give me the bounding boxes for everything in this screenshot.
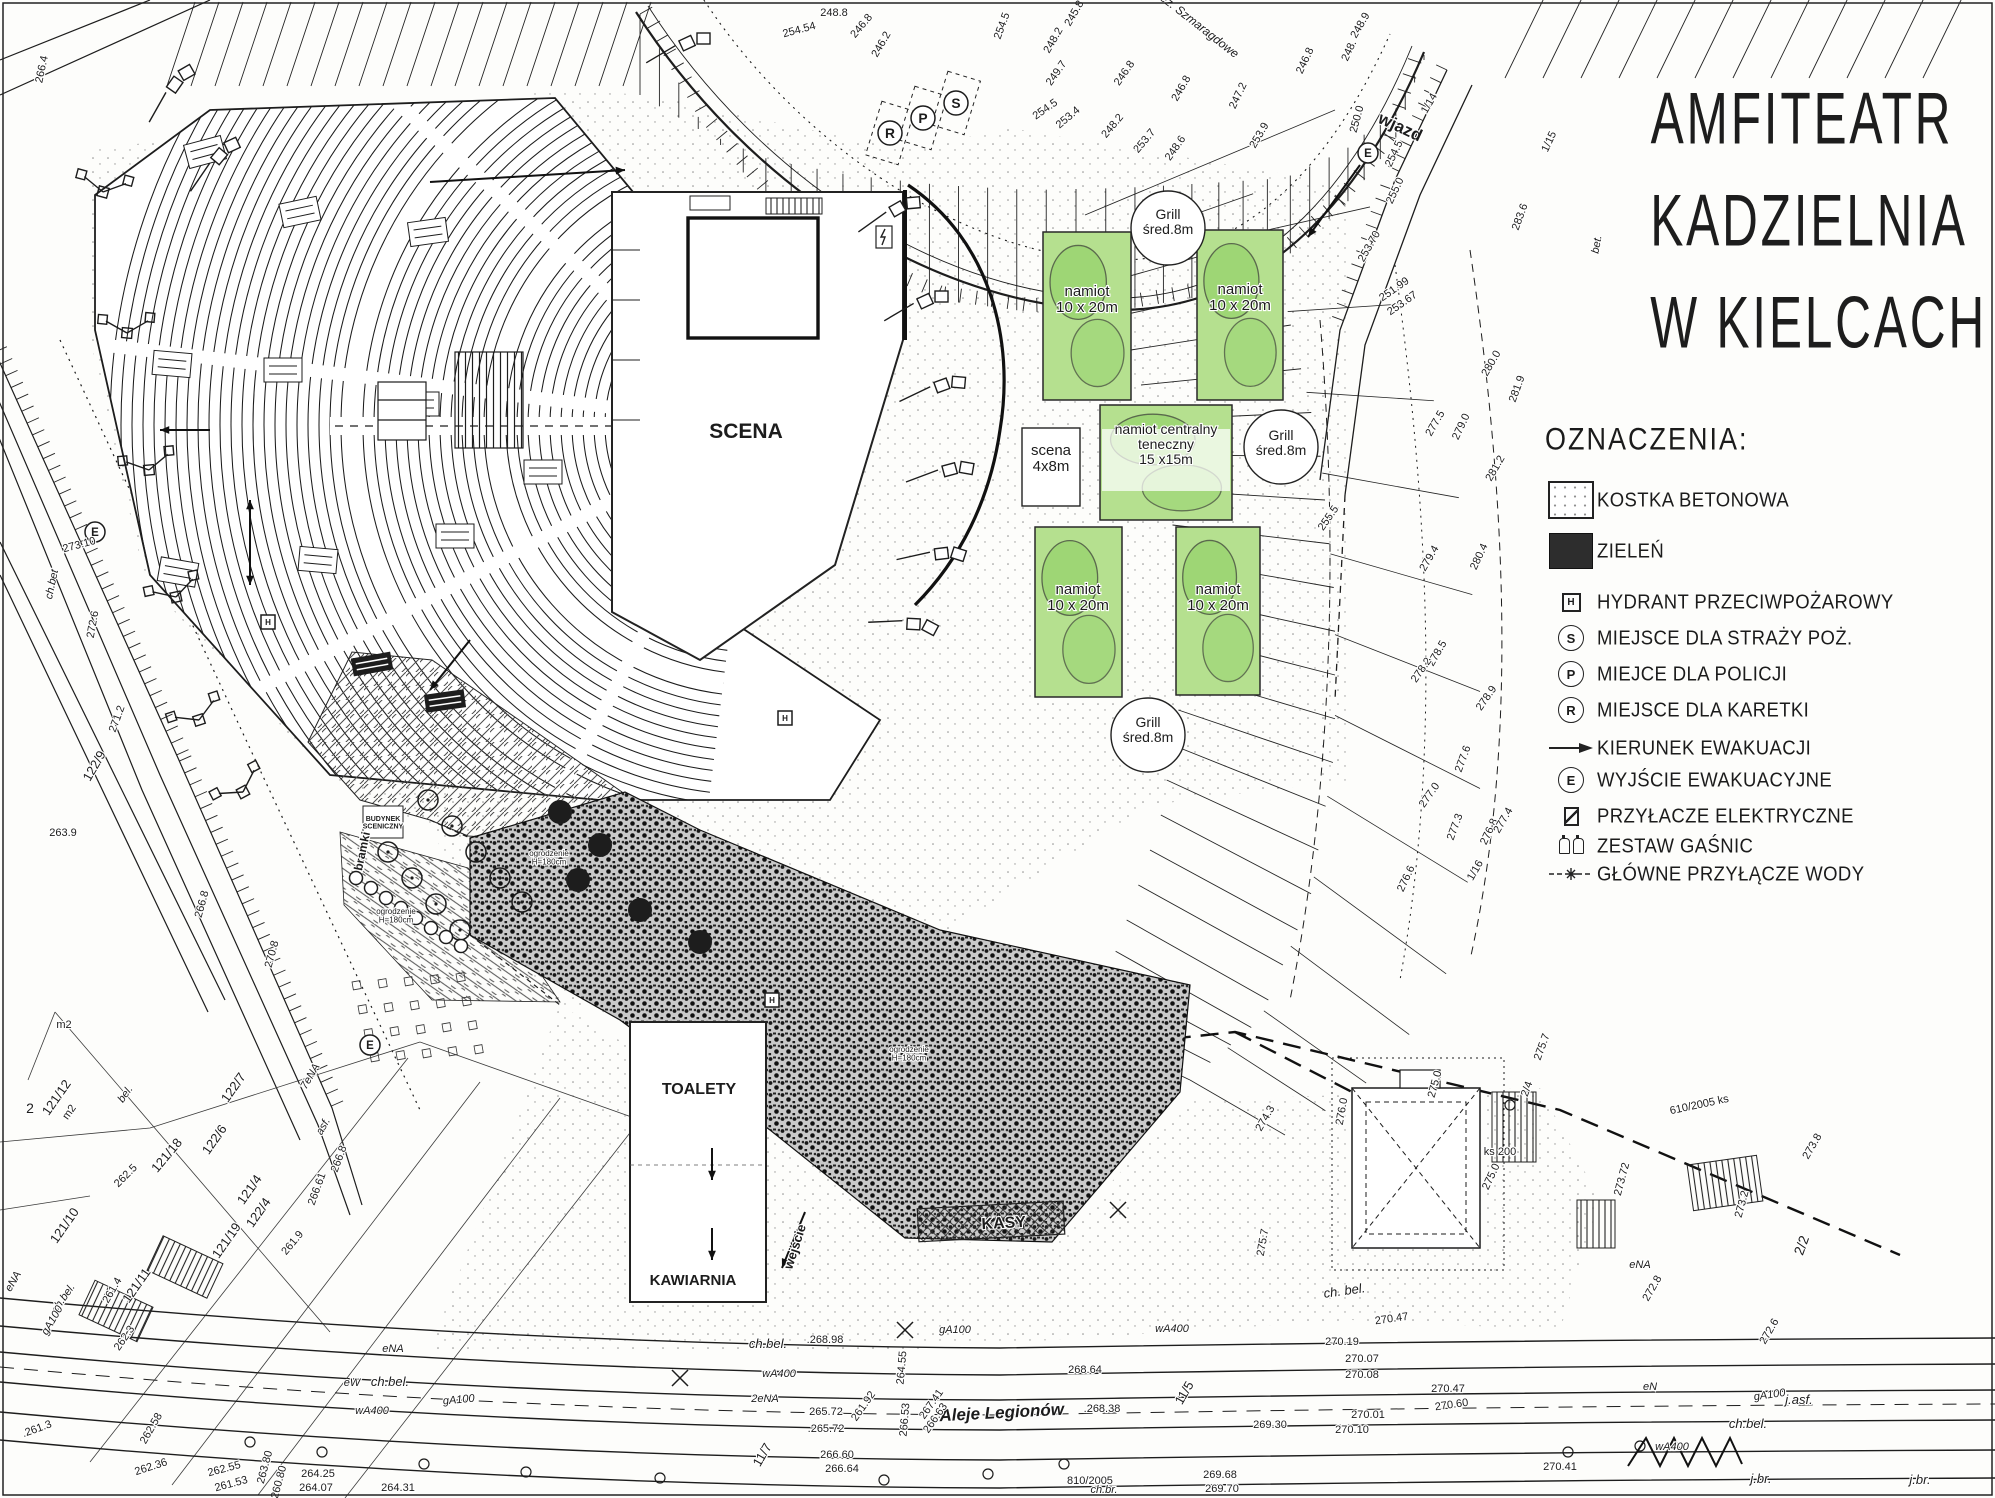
map-label: wA400 — [355, 1405, 390, 1417]
map-label: 264.31 — [381, 1482, 415, 1494]
map-label: j.br. — [1748, 1471, 1771, 1486]
map-label: 248.9 — [1348, 11, 1372, 41]
map-label: 271.2 — [107, 704, 128, 734]
map-label: 122/9 — [79, 748, 108, 784]
legend-label: WYJŚCIE EWAKUACYJNE — [1597, 768, 1832, 793]
map-label: eNA — [1629, 1259, 1650, 1271]
map-label: namiot10 x 20m — [1056, 283, 1118, 316]
map-label: 266.53 — [898, 1402, 913, 1437]
map-label: 262.58 — [138, 1411, 165, 1446]
legend-label: GŁÓWNE PRZYŁĄCZE WODY — [1597, 862, 1864, 887]
marker-P: P — [911, 106, 935, 130]
map-label: ogrodzenieH=180cm — [529, 849, 569, 867]
legend-item-gasnice: ZESTAW GAŚNIC — [1545, 835, 1990, 857]
map-label: .268.38 — [1084, 1403, 1121, 1415]
legend-label: KOSTKA BETONOWA — [1597, 488, 1789, 513]
map-label: 272.8 — [1640, 1274, 1664, 1304]
map-label: namiot10 x 20m — [1209, 281, 1271, 314]
map-label: 253.9 — [1247, 121, 1271, 151]
marker-E: E — [360, 1035, 380, 1055]
fire-brigade-icon: S — [1558, 625, 1584, 651]
map-label: namiot10 x 20m — [1187, 581, 1249, 614]
map-label: 246.8 — [1112, 59, 1138, 88]
map-label: 246.2 — [869, 30, 893, 60]
map-label: 270.10 — [1335, 1424, 1369, 1436]
map-label: SCENA — [709, 420, 783, 443]
legend-item-straz: S MIEJSCE DLA STRAŻY POŻ. — [1545, 625, 1990, 651]
map-label: 270.01 — [1351, 1409, 1385, 1421]
title-line-1: AMFITEATR — [1650, 83, 1954, 156]
legend-label: KIERUNEK EWAKUACJI — [1597, 736, 1811, 761]
map-label: 1/16 — [1465, 858, 1486, 883]
map-label: 246.8 — [848, 12, 875, 41]
map-label: .268.98 — [807, 1334, 844, 1346]
map-label: 273.72 — [1612, 1161, 1632, 1197]
map-label: 266.8 — [193, 889, 212, 919]
map-label: gA100 — [442, 1393, 476, 1408]
map-label: 246.8 — [1294, 46, 1317, 76]
title-block: AMFITEATR KADZIELNIA W KIELCACH — [1637, 92, 1967, 398]
map-label: 262.5 — [112, 1162, 140, 1190]
map-label: 11/7 — [750, 1440, 775, 1469]
map-label: eW — [344, 1377, 362, 1389]
map-label: 266.64 — [825, 1463, 859, 1475]
map-label: 248.8 — [820, 7, 848, 19]
map-label: 254.5 — [992, 11, 1013, 41]
title-line-3: W KIELCACH — [1650, 287, 1954, 360]
map-label: 277.0 — [1417, 781, 1443, 810]
map-label: 254.5 — [1031, 97, 1060, 123]
site-plan-page: RPSEEEHHH SCENATOALETYKAWIARNIAKASYwejśc… — [0, 0, 1995, 1498]
water-main-icon — [1549, 867, 1593, 881]
map-label: 266.4 — [33, 55, 50, 84]
legend-item-woda: GŁÓWNE PRZYŁĄCZE WODY — [1545, 863, 1990, 885]
map-label: 11/5 — [1172, 1378, 1197, 1407]
east-building — [1332, 1058, 1504, 1270]
map-label: 273.8 — [1800, 1132, 1824, 1162]
map-label: 263.80 — [255, 1449, 275, 1485]
map-label: m2 — [60, 1103, 79, 1122]
map-label: 270.8 — [263, 939, 282, 969]
legend-heading: OZNACZENIA: — [1545, 422, 1990, 458]
map-label: 610/2005 ks — [1669, 1093, 1731, 1117]
electric-connection-icon — [1564, 807, 1579, 826]
map-label: 276.6 — [1395, 864, 1418, 894]
map-label: 263.9 — [49, 827, 77, 839]
map-label: j.br. — [1907, 1472, 1930, 1487]
concrete-swatch-icon — [1548, 481, 1594, 519]
map-label: 277.3 — [1445, 812, 1466, 842]
legend-item-zielen: ZIELEŃ — [1545, 533, 1990, 569]
legend: OZNACZENIA: KOSTKA BETONOWA ZIELEŃ H HYD… — [1545, 424, 1990, 885]
electric-connection-icon — [876, 226, 892, 248]
map-label: 270.19 — [1325, 1336, 1359, 1348]
marker-E: E — [1358, 143, 1378, 163]
hydrant-icon: H — [1562, 593, 1581, 612]
map-label: 281.2 — [1483, 454, 1507, 484]
svg-text:S: S — [951, 96, 960, 111]
map-label: 1/14 — [1419, 91, 1440, 116]
map-label: 261.53 — [213, 1474, 249, 1494]
map-label: 264.55 — [895, 1350, 910, 1385]
map-label: 277.6 — [1453, 744, 1474, 774]
map-label: 278.2 — [1409, 656, 1435, 685]
map-label: wjazd — [1374, 108, 1425, 145]
map-label: 280.4 — [1468, 542, 1491, 572]
map-label: 264.25 — [301, 1468, 335, 1480]
map-label: 250.0 — [1348, 104, 1367, 134]
svg-text:R: R — [885, 126, 895, 141]
map-label: 269.68 — [1203, 1469, 1237, 1481]
map-label: 248. — [1339, 38, 1359, 62]
map-label: 280.0 — [1479, 349, 1503, 379]
ambulance-icon: R — [1558, 697, 1584, 723]
map-label: 272.6 — [1757, 1317, 1781, 1347]
map-label: 254.54 — [781, 20, 817, 40]
map-label: ks 200 — [1484, 1146, 1516, 1158]
map-label: 270.07 — [1345, 1353, 1379, 1365]
legend-item-hydrant: H HYDRANT PRZECIWPOŻAROWY — [1545, 591, 1990, 613]
map-label: eN — [1643, 1381, 1657, 1393]
map-label: TOALETY — [662, 1081, 737, 1098]
legend-label: MIEJSCE DLA KARETKI — [1597, 698, 1809, 723]
map-label: 270.41 — [1543, 1461, 1577, 1473]
map-label: eNA — [382, 1343, 403, 1355]
map-label: jez. Szmaragdowe — [1154, 0, 1242, 61]
svg-text:E: E — [1364, 148, 1372, 160]
map-label: gA100 — [939, 1324, 972, 1336]
map-label: 265.72 — [809, 1406, 843, 1418]
svg-text:H: H — [265, 618, 271, 627]
map-label: BUDYNEKSCENICZNY — [363, 816, 404, 831]
title-line-2: KADZIELNIA — [1650, 185, 1954, 258]
map-label: 273.10 — [61, 535, 97, 555]
map-label: 253.70 — [1356, 229, 1383, 264]
map-label: ch.br. — [1090, 1484, 1117, 1496]
map-label: 275.7 — [1532, 1032, 1553, 1062]
legend-item-karetka: R MIEJSCE DLA KARETKI — [1545, 697, 1990, 723]
legend-label: HYDRANT PRZECIWPOŻAROWY — [1597, 590, 1894, 615]
map-label: 246.8 — [1169, 74, 1193, 104]
marker-R: R — [878, 121, 902, 145]
extinguisher-set-icon — [1559, 838, 1584, 854]
map-label: 260.80 — [269, 1464, 289, 1498]
map-label: 2/2 — [1790, 1233, 1812, 1257]
map-label: 281.9 — [1507, 374, 1528, 404]
emergency-exit-icon: E — [1558, 767, 1584, 793]
marker-S: S — [944, 91, 968, 115]
map-label: 261.92 — [849, 1389, 878, 1423]
map-label: j.asf. — [1783, 1392, 1812, 1407]
map-label: 122/6 — [199, 1122, 230, 1157]
legend-item-policja: P MIEJCE DLA POLICJI — [1545, 661, 1990, 687]
police-icon: P — [1558, 661, 1584, 687]
map-label: wA400 — [762, 1368, 797, 1380]
map-label: 249.7 — [1044, 59, 1070, 88]
map-label: 270.08 — [1345, 1369, 1379, 1381]
map-label: ogrodzenieH=180cm — [889, 1045, 929, 1063]
map-label: 248.2 — [1041, 26, 1065, 56]
map-label: 121/18 — [148, 1135, 185, 1175]
map-label: asf. — [314, 1116, 333, 1137]
mixing-console — [378, 382, 426, 440]
map-label: wA400 — [1655, 1441, 1690, 1453]
map-label: 245.8 — [1062, 0, 1086, 28]
legend-label: MIEJSCE DLA STRAŻY POŻ. — [1597, 626, 1853, 651]
map-label: 266.61 — [306, 1171, 329, 1207]
map-label: 121/19 — [209, 1220, 244, 1261]
map-label: 279.4 — [1417, 544, 1441, 574]
map-label: 269.30 — [1253, 1419, 1287, 1431]
map-label: wA400 — [1155, 1323, 1190, 1335]
front-stage-block — [455, 352, 523, 448]
map-label: 262.36 — [133, 1456, 169, 1478]
map-label: 2eNA — [750, 1393, 779, 1405]
marker-H: H — [765, 993, 779, 1007]
map-label: 278.9 — [1474, 684, 1500, 713]
marker-H: H — [778, 711, 792, 725]
marker-H: H — [261, 615, 275, 629]
map-label: ch.bel. — [749, 1336, 787, 1351]
legend-item-kierunek: KIERUNEK EWAKUACJI — [1545, 737, 1990, 759]
map-label: 255.0 — [1384, 176, 1407, 206]
map-label: 270.60 — [1434, 1397, 1469, 1414]
legend-item-elektryczne: PRZYŁACZE ELEKTRYCZNE — [1545, 805, 1990, 827]
legend-label: MIEJCE DLA POLICJI — [1597, 662, 1787, 687]
map-label: 283.6 — [1510, 202, 1531, 232]
map-label: 121/10 — [47, 1205, 82, 1246]
legend-label: ZESTAW GAŚNIC — [1597, 834, 1753, 859]
map-label: 268.64 — [1068, 1364, 1102, 1376]
map-label: .261.3 — [21, 1418, 54, 1440]
map-label: m2 — [56, 1019, 71, 1031]
map-label: 272.6 — [85, 610, 102, 639]
map-label: 269.70 — [1205, 1483, 1239, 1495]
evacuation-arrow-icon — [1549, 742, 1593, 754]
map-label: 279.0 — [1450, 412, 1473, 442]
map-label: 270.47 — [1431, 1383, 1465, 1395]
map-label: 277.5 — [1423, 409, 1447, 439]
map-label: 266.8 — [329, 1144, 350, 1174]
map-label: Aleje Legionów — [938, 1400, 1066, 1426]
map-label: 122/7 — [218, 1070, 249, 1105]
map-label: 7eNA — [298, 1062, 322, 1092]
legend-item-wyjscie: E WYJŚCIE EWAKUACYJNE — [1545, 767, 1990, 793]
map-label: 2 — [26, 1100, 34, 1116]
map-label: gA100 — [1753, 1387, 1787, 1403]
map-label: 248.2 — [1099, 112, 1126, 141]
map-label: ch.bel. — [371, 1374, 409, 1389]
svg-text:P: P — [918, 111, 927, 126]
map-label: 266.60 — [820, 1449, 854, 1461]
map-label: 247.2 — [1227, 81, 1250, 111]
map-label: KASY — [981, 1214, 1027, 1233]
map-label: KAWIARNIA — [650, 1272, 737, 1289]
svg-text:E: E — [366, 1040, 374, 1052]
greenery-swatch-icon — [1549, 533, 1593, 569]
map-label: ogrodzenieH=180cm — [376, 907, 416, 925]
map-label: .265.72 — [808, 1423, 845, 1435]
legend-label: PRZYŁACZE ELEKTRYCZNE — [1597, 804, 1854, 829]
map-label: namiot10 x 20m — [1047, 581, 1109, 614]
svg-text:H: H — [782, 714, 788, 723]
toalety-kawiarnia-building — [630, 1022, 766, 1302]
map-label: 264.07 — [299, 1482, 333, 1494]
map-label: scena4x8m — [1031, 442, 1072, 475]
legend-item-kostka: KOSTKA BETONOWA — [1545, 481, 1990, 519]
svg-text:H: H — [769, 996, 775, 1005]
legend-label: ZIELEŃ — [1597, 539, 1664, 564]
map-label: ch.bel. — [1729, 1416, 1767, 1431]
map-label: 1/15 — [1539, 129, 1559, 153]
map-label: 261.9 — [279, 1229, 306, 1258]
map-label: eNA — [3, 1269, 24, 1294]
map-label: bet. — [1590, 234, 1605, 254]
map-label: 253.4 — [1054, 104, 1083, 131]
